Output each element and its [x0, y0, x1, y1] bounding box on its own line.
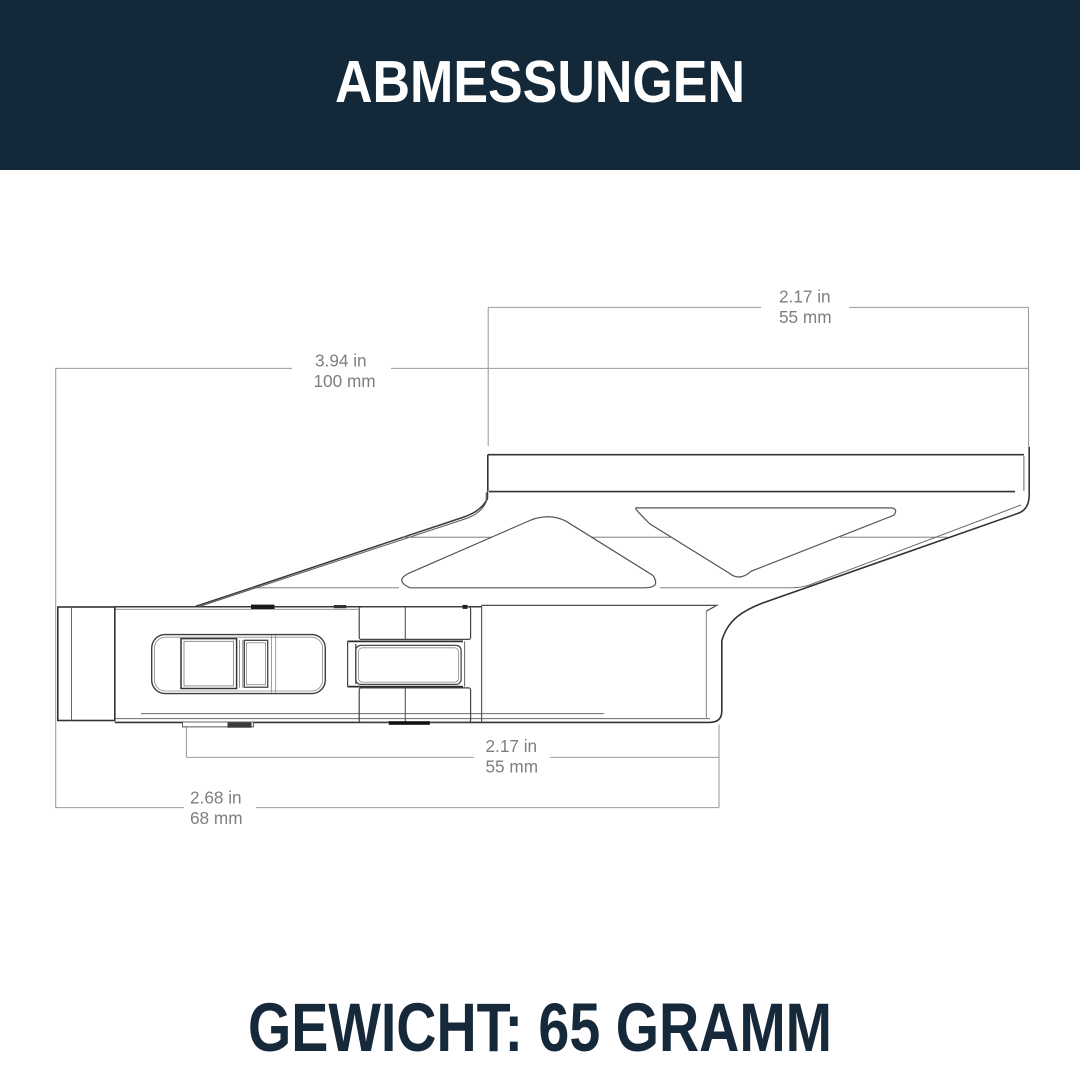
svg-text:55 mm: 55 mm [486, 756, 539, 776]
svg-text:100 mm: 100 mm [314, 371, 376, 391]
svg-text:GEWICHT: 65 GRAMM: GEWICHT: 65 GRAMM [248, 989, 832, 1066]
svg-text:3.94 in: 3.94 in [315, 350, 367, 370]
svg-text:ABMESSUNGEN: ABMESSUNGEN [335, 49, 745, 115]
svg-text:2.68 in: 2.68 in [190, 787, 242, 807]
svg-text:55 mm: 55 mm [779, 307, 832, 327]
svg-text:2.17 in: 2.17 in [486, 736, 538, 756]
svg-text:2.17 in: 2.17 in [779, 287, 831, 307]
svg-text:68 mm: 68 mm [190, 808, 243, 828]
